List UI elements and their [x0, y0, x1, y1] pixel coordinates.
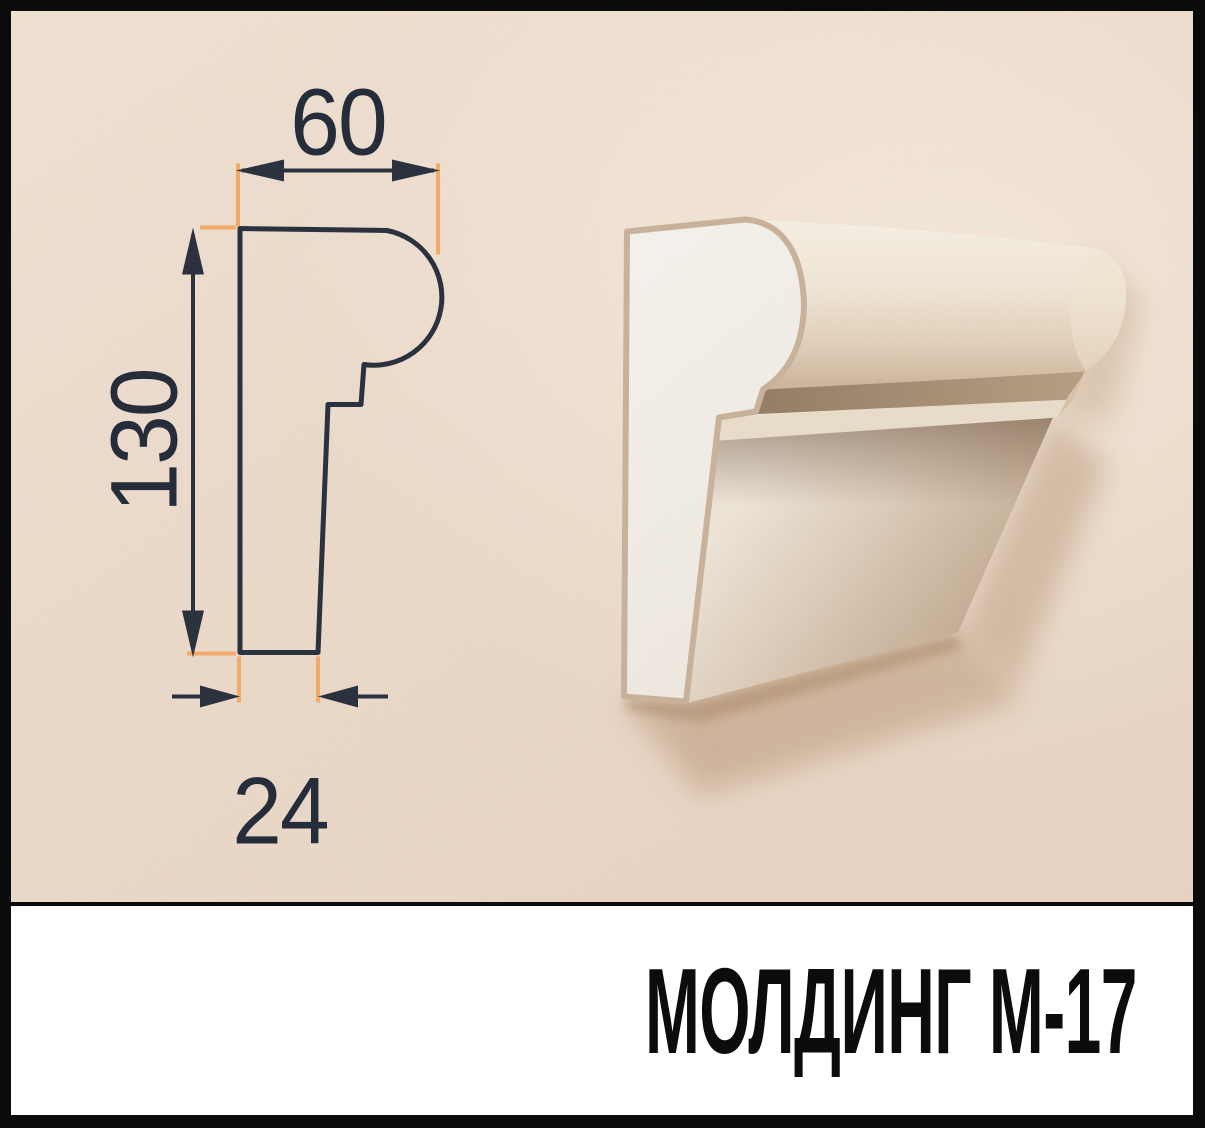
dimension-width-label: 60 [290, 76, 386, 171]
product-card: 60 130 24 МОЛДИНГ М-17 [0, 0, 1205, 1128]
dimension-thickness-label: 24 [232, 765, 328, 860]
product-photo: 60 130 24 [11, 11, 1193, 902]
title-banner: МОЛДИНГ М-17 [11, 906, 1193, 1115]
dimension-height-label: 130 [98, 369, 193, 512]
product-title: МОЛДИНГ М-17 [645, 950, 1137, 1072]
